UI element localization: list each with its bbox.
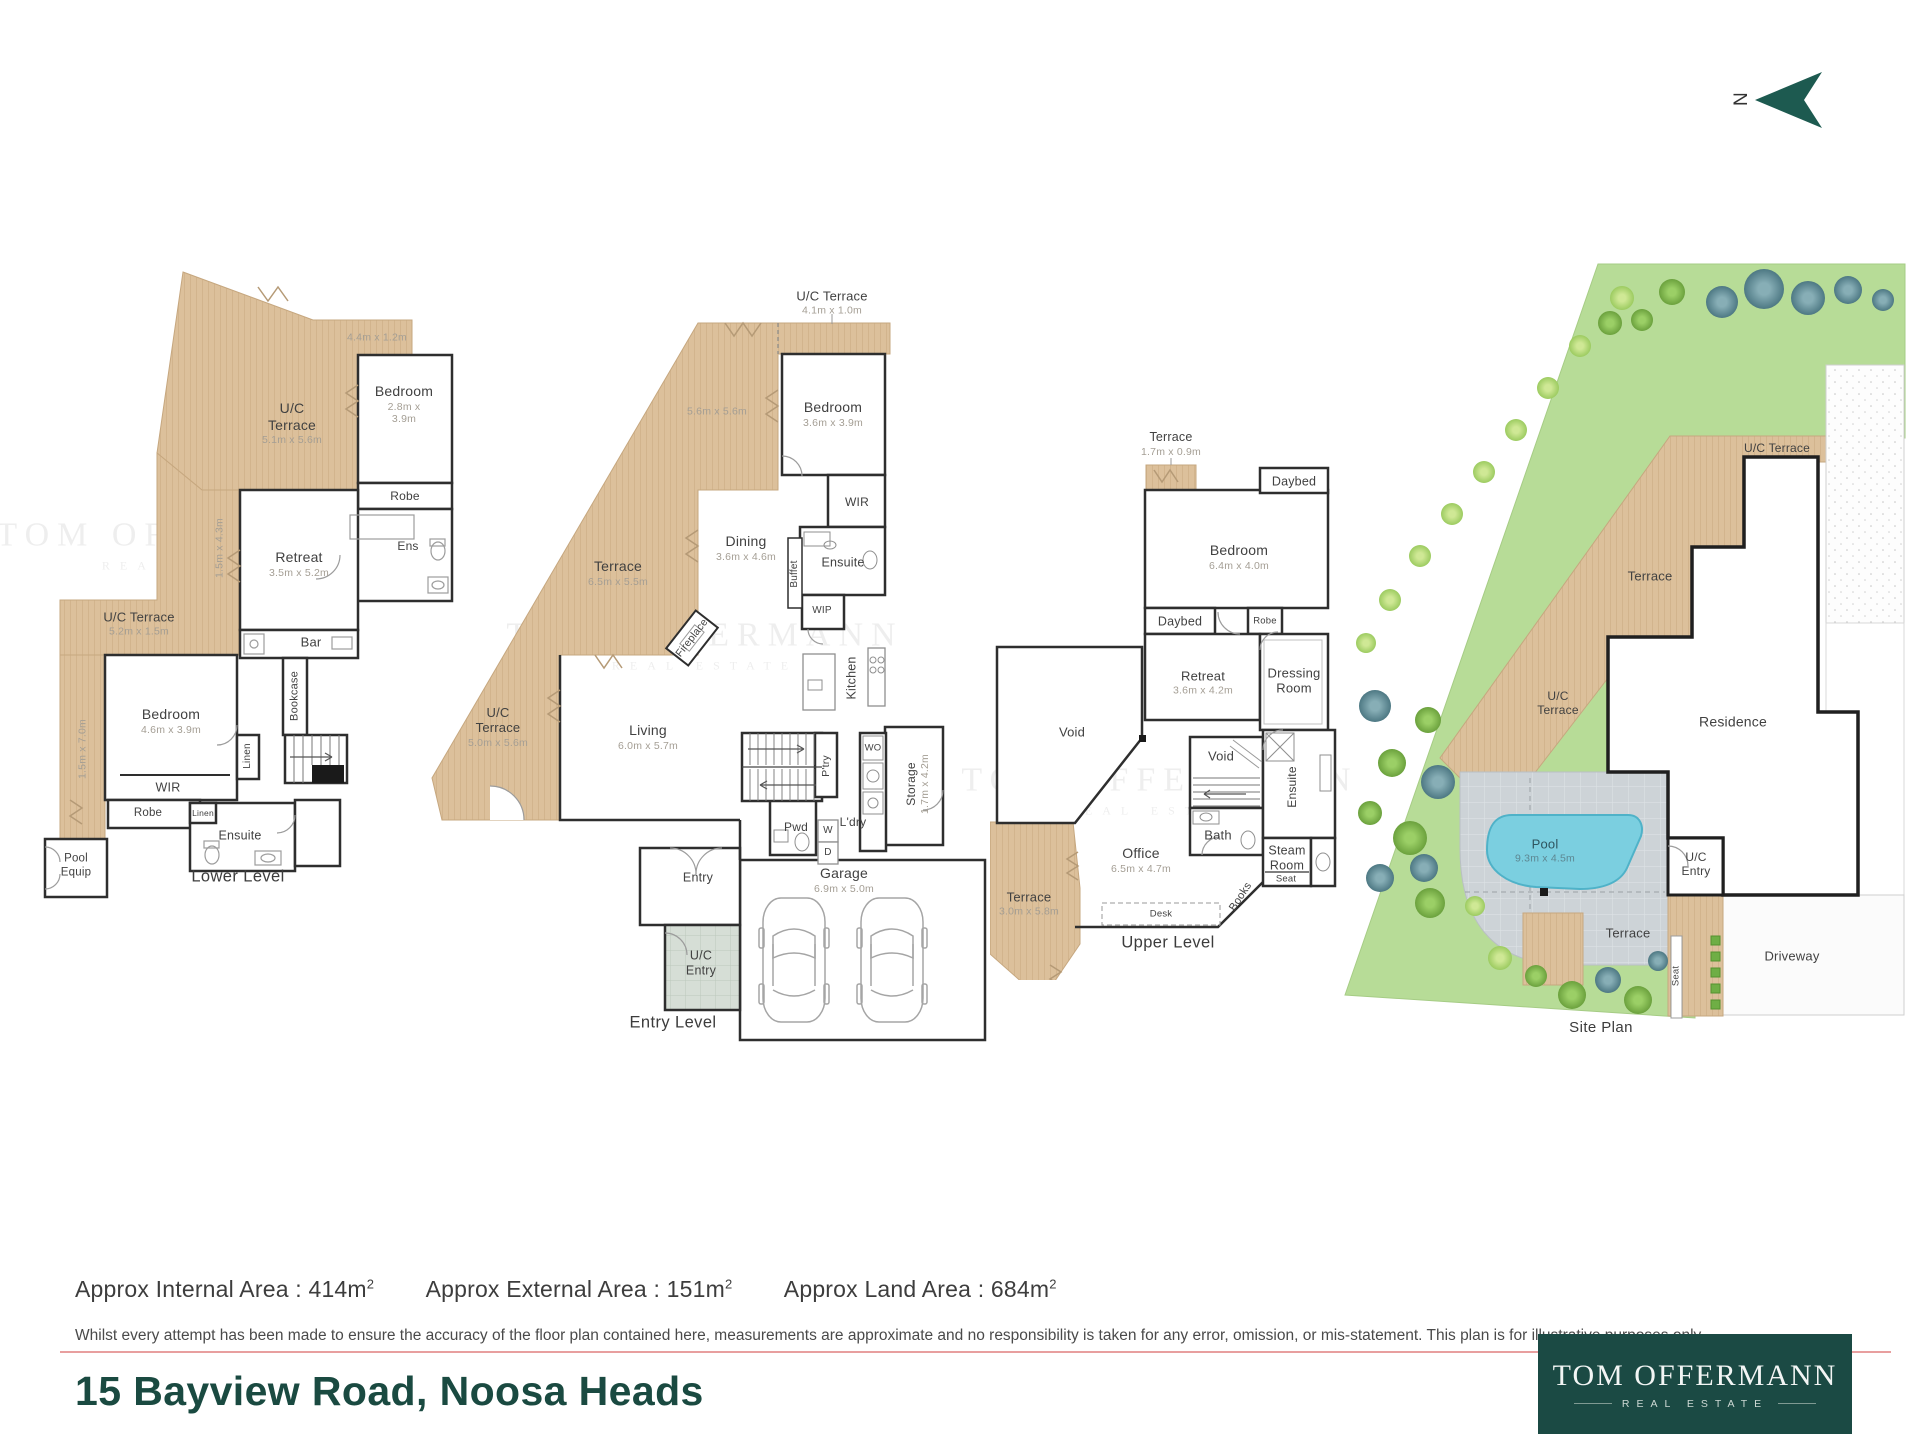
room-label-robe: Robe (1253, 615, 1277, 626)
room-label-laundry: L'dry (840, 815, 867, 829)
area-label-terrace: Terrace (1628, 568, 1673, 583)
room-label-daybed: Daybed (1272, 475, 1316, 490)
room-label-wall-oven: WO (865, 742, 882, 753)
room-label-wir: WIR (845, 495, 869, 509)
room-label-uc-entry: U/C Entry (686, 948, 716, 978)
room-label-bookcase: Bookcase (289, 671, 302, 721)
room-label-storage: Storage1.7m x 4.2m (904, 754, 932, 814)
room-label-robe: Robe (390, 489, 420, 503)
area-label-residence: Residence (1699, 714, 1767, 731)
room-label-retreat: Retreat3.6m x 4.2m (1173, 669, 1233, 698)
room-label-wir: WIR (156, 781, 181, 796)
room-label-bedroom: Bedroom2.8m x 3.9m (375, 383, 433, 425)
north-arrow-graphic: N (1725, 45, 1865, 135)
floorplan-page: { "north": {"label": "N"}, "watermark": … (0, 0, 1920, 1440)
room-label-bedroom: Bedroom4.6m x 3.9m (141, 706, 201, 736)
room-label-living: Living6.0m x 5.7m (618, 722, 678, 752)
agency-name: TOM OFFERMANN (1553, 1359, 1838, 1393)
north-arrow: N (1725, 45, 1865, 135)
room-label-powder: Pwd (784, 820, 808, 834)
room-label-entry: Entry (683, 871, 713, 886)
room-label-bedroom: Bedroom6.4m x 4.0m (1209, 542, 1269, 572)
room-label-dining: Dining3.6m x 4.6m (716, 533, 776, 563)
room-label-kitchen: Kitchen (845, 656, 860, 699)
room-label-office: Office6.5m x 4.7m (1111, 845, 1171, 875)
room-label-void: Void (1059, 724, 1085, 739)
area-label-uc-terrace: U/C Terrace (1744, 441, 1810, 455)
plan-title-upper-level: Upper Level (1121, 933, 1214, 952)
room-label-terrace: Terrace6.5m x 5.5m (588, 558, 648, 588)
room-label-uc-terrace: U/C Terrace5.2m x 1.5m (103, 610, 174, 639)
land-area: Approx Land Area : 684m2 (784, 1276, 1057, 1302)
room-label-dryer: D (824, 847, 831, 859)
site-plan: U/C Terrace Terrace Residence U/C Terrac… (1340, 258, 1915, 1058)
dim-label: 1.5m x 4.3m (212, 518, 225, 578)
room-label-terrace: Terrace3.0m x 5.8m (999, 890, 1059, 919)
dim-label: 1.5m x 7.0m (75, 719, 88, 779)
agency-tagline: REAL ESTATE (1574, 1398, 1816, 1410)
room-label-uc-terrace: U/C Terrace5.1m x 5.6m (262, 400, 322, 446)
area-label-uc-terrace: U/C Terrace (1537, 689, 1578, 717)
entry-level-plan: U/C Terrace4.1m x 1.0m 5.6m x 5.6m Bedro… (430, 230, 1000, 1070)
room-label-pantry: P'try (820, 755, 832, 777)
room-label-ens: Ens (397, 539, 418, 553)
room-label-robe: Robe (134, 807, 162, 821)
plan-title-lower-level: Lower Level (191, 867, 284, 886)
room-label-buffet: Buffet (789, 560, 801, 587)
room-label-daybed: Daybed (1158, 615, 1202, 630)
north-letter: N (1731, 92, 1752, 106)
area-label-driveway: Driveway (1764, 948, 1819, 963)
area-summary: Approx Internal Area : 414m2 Approx Exte… (75, 1276, 1103, 1303)
area-label-terrace: Terrace (1606, 925, 1651, 940)
room-label-uc-terrace: U/C Terrace4.1m x 1.0m (796, 289, 867, 318)
room-label-uc-terrace: U/C Terrace5.0m x 5.6m (468, 705, 528, 749)
room-label-steam-room: Steam Room (1268, 843, 1305, 873)
plan-title-entry-level: Entry Level (630, 1013, 717, 1032)
entry-level-drawing (430, 230, 1000, 1070)
external-area: Approx External Area : 151m2 (426, 1276, 733, 1302)
room-label-void: Void (1208, 748, 1234, 763)
lower-level-drawing (40, 255, 460, 905)
room-label-seat: Seat (1276, 873, 1296, 884)
room-label-bar: Bar (301, 634, 322, 649)
room-label-ensuite: Ensuite (821, 556, 864, 571)
area-label-uc-entry: U/C Entry (1681, 850, 1710, 878)
room-label-ensuite: Ensuite (1285, 766, 1299, 807)
area-label-pool: Pool9.3m x 4.5m (1515, 837, 1575, 866)
plan-title-site-plan: Site Plan (1569, 1019, 1633, 1037)
internal-area: Approx Internal Area : 414m2 (75, 1276, 374, 1302)
room-label-bedroom: Bedroom3.6m x 3.9m (803, 399, 863, 429)
property-address: 15 Bayview Road, Noosa Heads (75, 1368, 704, 1415)
upper-level-plan: Terrace1.7m x 0.9m Daybed Bedroom6.4m x … (990, 420, 1380, 980)
room-label-terrace: Terrace1.7m x 0.9m (1141, 430, 1201, 458)
room-label-bath: Bath (1204, 827, 1232, 842)
room-label-linen: Linen (242, 743, 254, 768)
agency-logo: TOM OFFERMANN REAL ESTATE (1538, 1334, 1852, 1434)
room-label-washer: W (823, 825, 833, 837)
room-label-garage: Garage6.9m x 5.0m (814, 865, 874, 895)
dim-label: 5.6m x 5.6m (687, 404, 747, 417)
room-label-linen: Linen (192, 808, 214, 818)
room-label-wip: WIP (812, 605, 832, 617)
room-label-desk: Desk (1150, 908, 1172, 919)
room-label-pool-equip: Pool Equip (61, 852, 91, 879)
room-label-ensuite: Ensuite (218, 829, 261, 844)
lower-level-plan: 4.4m x 1.2m U/C Terrace5.1m x 5.6m Bedro… (40, 255, 460, 905)
room-label-retreat: Retreat3.5m x 5.2m (269, 549, 329, 579)
area-label-seat: Seat (1670, 966, 1681, 986)
dim-label: 4.4m x 1.2m (347, 330, 407, 343)
room-label-dressing-room: Dressing Room (1268, 666, 1321, 697)
